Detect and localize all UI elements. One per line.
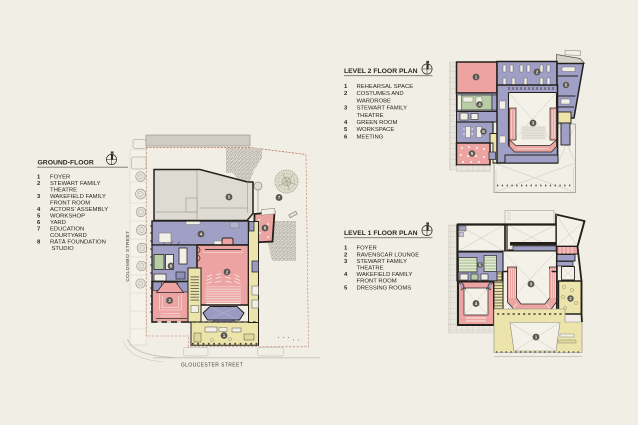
svg-text:6: 6 [482,129,485,134]
svg-text:WORKSPACE: WORKSPACE [357,127,395,133]
svg-text:4: 4 [475,301,478,306]
svg-text:1: 1 [223,333,226,338]
svg-text:STUDIO: STUDIO [52,246,75,252]
svg-text:STEWART FAMILY: STEWART FAMILY [357,106,408,112]
svg-text:FRONT ROOM: FRONT ROOM [357,279,397,285]
svg-text:5: 5 [565,83,568,88]
svg-text:3: 3 [168,298,171,303]
svg-text:4: 4 [200,232,203,237]
svg-text:EDUCATION: EDUCATION [50,227,84,233]
svg-text:3: 3 [530,282,533,287]
svg-text:1: 1 [475,75,478,80]
svg-text:FOYER: FOYER [357,246,377,252]
svg-text:REHEARSAL SPACE: REHEARSAL SPACE [357,84,414,90]
svg-text:COLOMBO STREET: COLOMBO STREET [125,230,131,281]
svg-text:GLOUCESTER STREET: GLOUCESTER STREET [181,363,243,369]
svg-text:5: 5 [479,263,482,268]
svg-text:THEATRE: THEATRE [50,188,77,194]
svg-text:3: 3 [532,121,535,126]
svg-text:ACTORS’ ASSEMBLY: ACTORS’ ASSEMBLY [50,207,108,213]
svg-text:LEVEL 2 FLOOR PLAN: LEVEL 2 FLOOR PLAN [344,68,418,75]
svg-text:1: 1 [535,335,538,340]
svg-text:6: 6 [264,226,267,231]
svg-text:RĀTĀ FOUNDATION: RĀTĀ FOUNDATION [50,239,106,246]
svg-text:GREEN ROOM: GREEN ROOM [357,120,398,126]
svg-text:FOYER: FOYER [50,175,70,181]
svg-text:5: 5 [228,195,231,200]
svg-text:2: 2 [536,70,539,75]
svg-text:7: 7 [278,195,281,200]
svg-text:MEETING: MEETING [357,134,384,140]
svg-text:RAVENSCAR LOUNGE: RAVENSCAR LOUNGE [357,252,420,258]
svg-text:WARDROBE: WARDROBE [357,98,392,104]
svg-text:COURTYARD: COURTYARD [50,233,87,239]
svg-text:WORKSHOP: WORKSHOP [50,214,85,220]
svg-text:COSTUMES AND: COSTUMES AND [357,91,404,97]
svg-text:THEATRE: THEATRE [357,113,384,119]
svg-text:GROUND-FLOOR: GROUND-FLOOR [38,160,94,167]
svg-text:WAKEFIELD FAMILY: WAKEFIELD FAMILY [50,194,106,200]
svg-text:THEATRE: THEATRE [357,266,384,272]
svg-text:STEWART FAMILY: STEWART FAMILY [357,259,408,265]
svg-text:5: 5 [471,151,474,156]
svg-text:YARD: YARD [50,220,66,226]
svg-text:LEVEL 1 FLOOR PLAN: LEVEL 1 FLOOR PLAN [344,230,418,237]
svg-text:WAKEFIELD FAMILY: WAKEFIELD FAMILY [357,272,413,278]
svg-text:DRESSING ROOMS: DRESSING ROOMS [357,285,412,291]
svg-text:FRONT ROOM: FRONT ROOM [50,201,90,207]
svg-text:4: 4 [478,102,481,107]
svg-text:2: 2 [569,296,572,301]
svg-text:STEWART FAMILY: STEWART FAMILY [50,181,101,187]
svg-text:8: 8 [170,264,173,269]
svg-text:2: 2 [226,270,229,275]
